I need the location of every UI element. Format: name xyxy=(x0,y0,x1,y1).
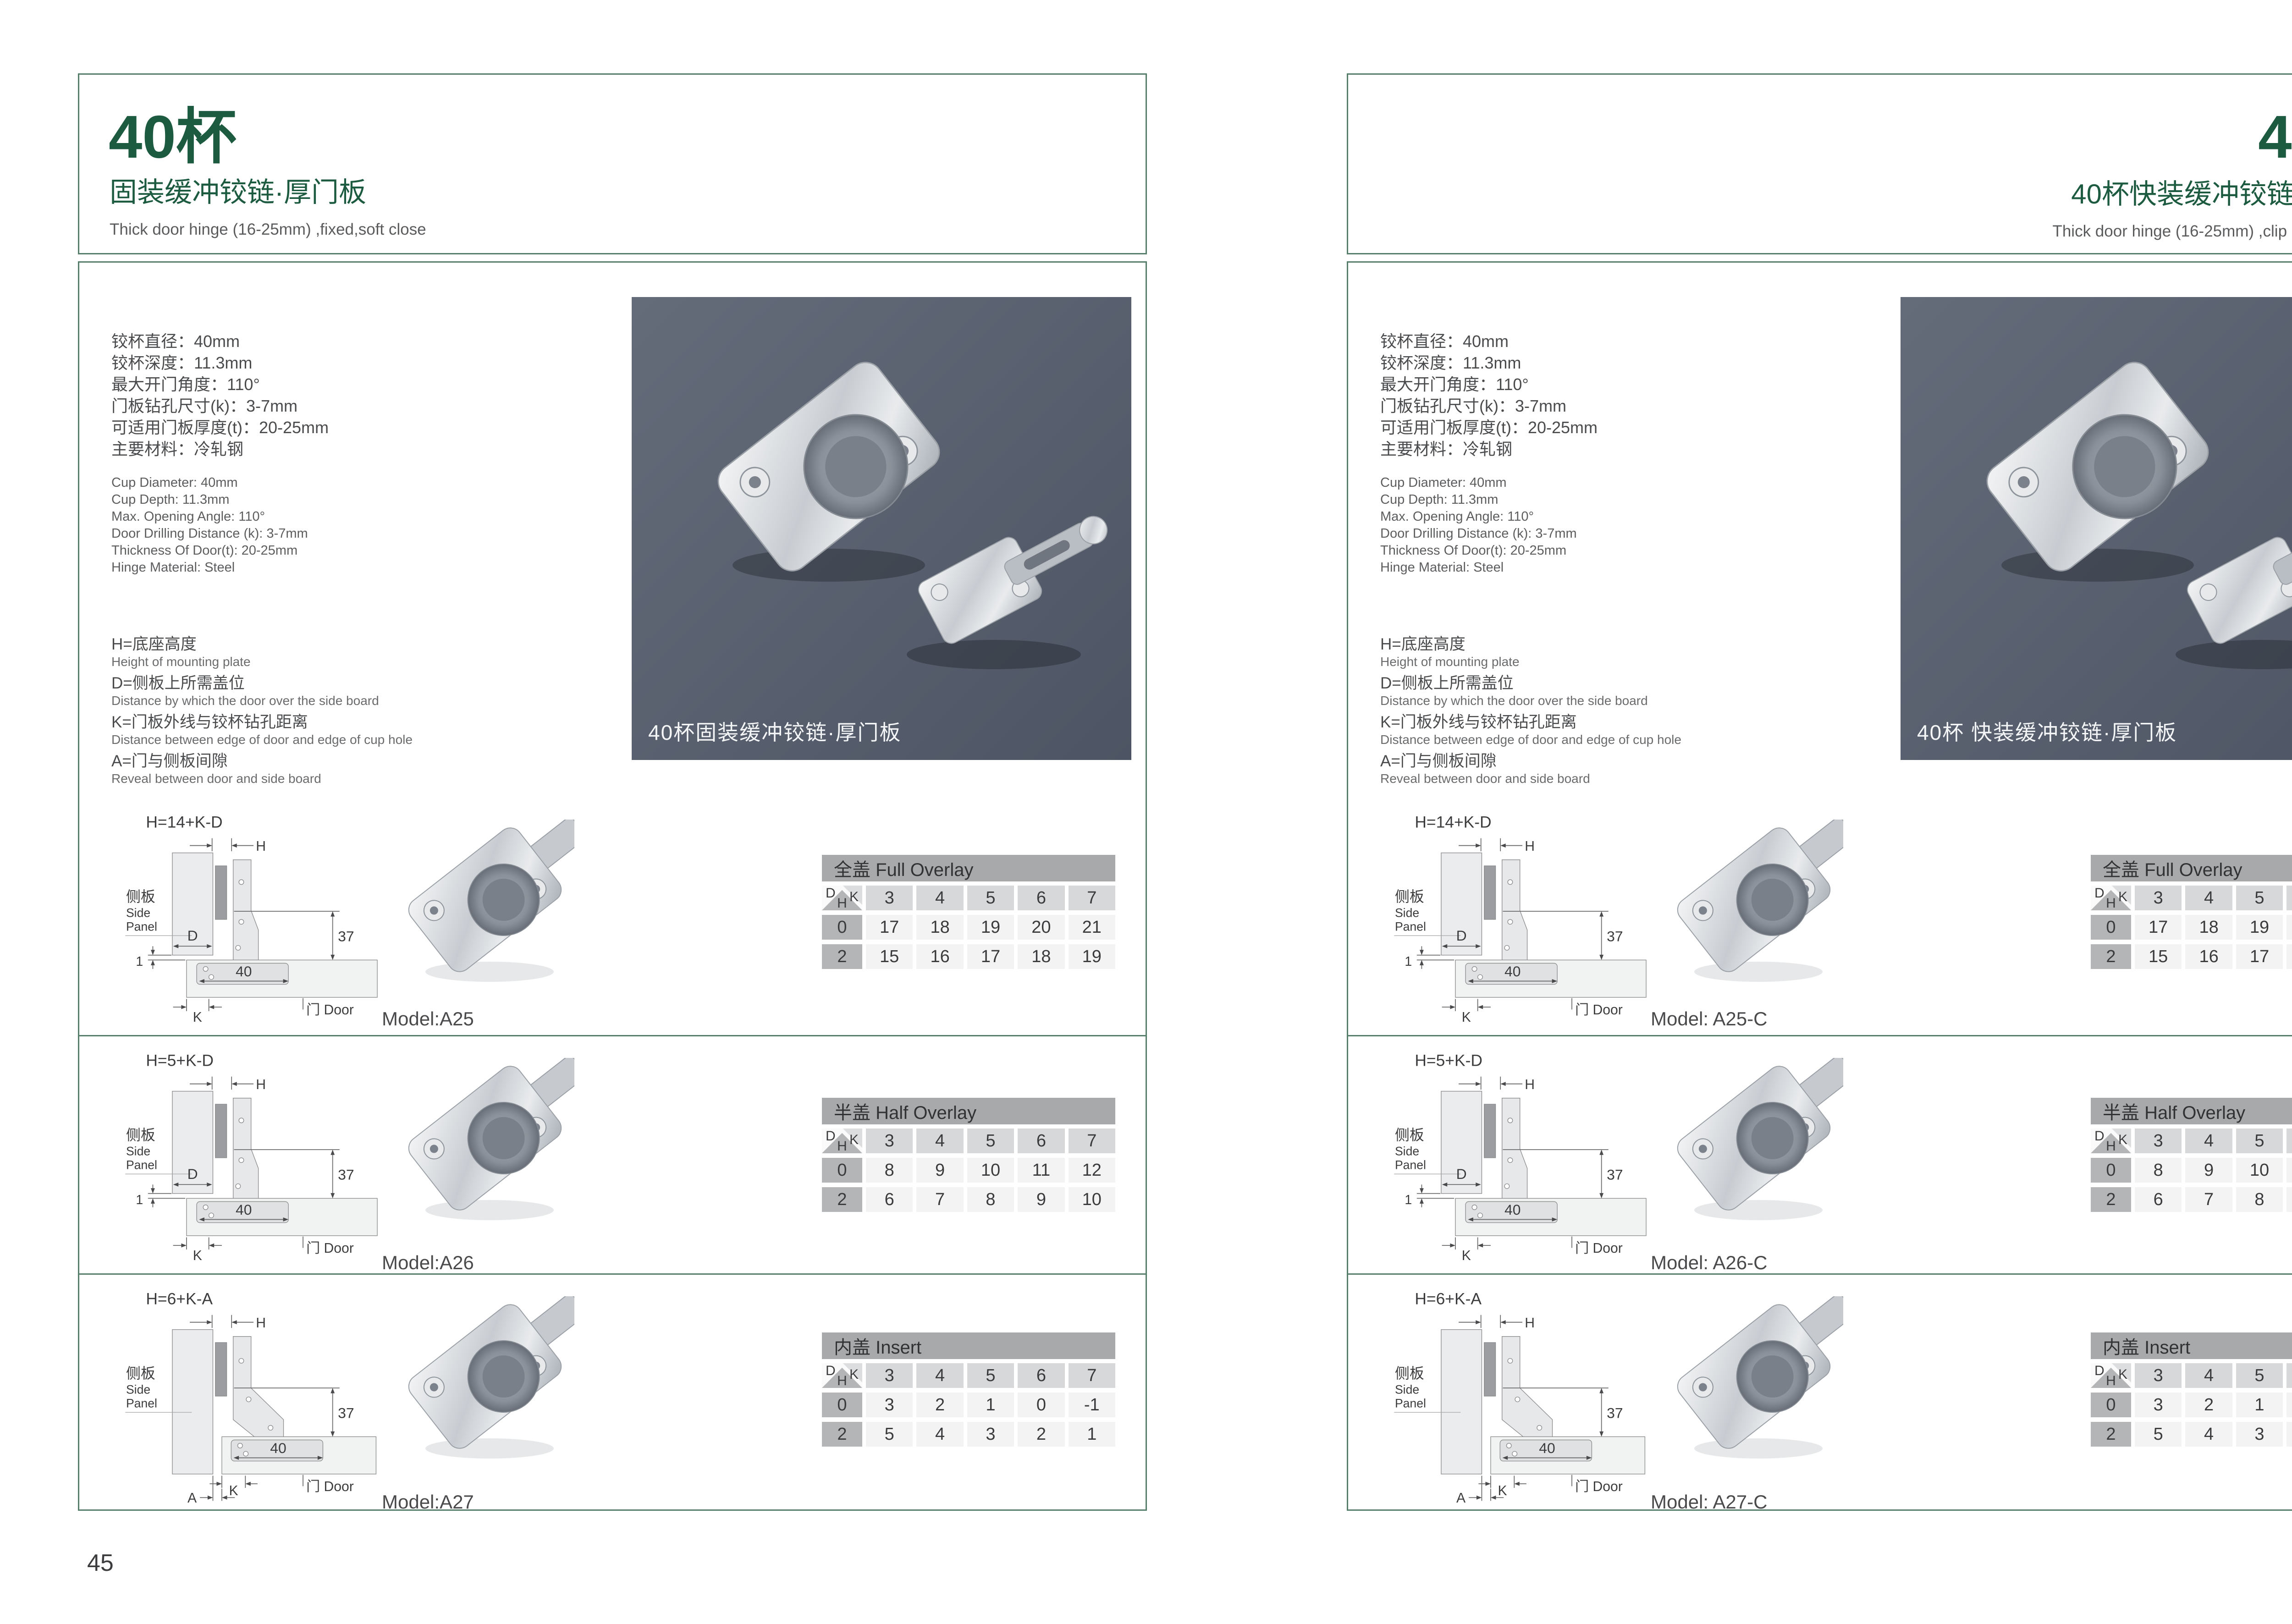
definition-cn: A=门与侧板间隙 xyxy=(111,752,629,771)
table-corner: D K H xyxy=(2091,1363,2131,1388)
table-value: 5 xyxy=(2135,1422,2182,1447)
definitions-block: H=底座高度 Height of mounting plate D=侧板上所需盖… xyxy=(111,635,629,791)
hinge-illustration xyxy=(400,820,574,994)
hinge-dimension-diagram: H=5+K-DH侧板SidePanel37D1K40门 Door xyxy=(111,1047,396,1271)
table-value: 21 xyxy=(1069,915,1115,940)
row-header: 2 xyxy=(822,944,862,969)
h-dim-label: H xyxy=(256,839,266,854)
corner-label-d: D xyxy=(2094,886,2105,901)
row-divider xyxy=(1348,1035,2292,1036)
side-panel-label-cn: 侧板 xyxy=(126,1365,155,1382)
row-divider xyxy=(79,1273,1146,1275)
row-header: 0 xyxy=(2091,1158,2131,1183)
definition-cn: A=门与侧板间隙 xyxy=(1380,752,1898,771)
corner-label-h: H xyxy=(2106,1373,2116,1388)
definition: D=侧板上所需盖位 Distance by which the door ove… xyxy=(111,674,629,709)
full-overlay-table: 全盖 Full Overlay D K H 3 4 5 6 7 0 17 18 xyxy=(822,855,1115,969)
spec-line-en: Max. Opening Angle: 110° xyxy=(111,508,620,525)
dim-37-label: 37 xyxy=(338,928,354,945)
row-header: 2 xyxy=(822,1187,862,1212)
hinge-photo xyxy=(1669,1296,1843,1470)
specs-cn-block: 铰杯直径：40mm 铰杯深度：11.3mm 最大开门角度：110° 门板钻孔尺寸… xyxy=(111,330,620,460)
table-corner: D K H xyxy=(822,1129,862,1153)
table-value: 6 xyxy=(2135,1187,2182,1212)
corner-label-k: K xyxy=(2118,889,2127,905)
door-label: 门 Door xyxy=(306,1002,354,1018)
row-header: 0 xyxy=(2091,915,2131,940)
table-corner: D K H xyxy=(822,886,862,910)
corner-label-d: D xyxy=(826,1363,836,1379)
installation-diagram: H=5+K-DH侧板SidePanel37D1K40门 Door xyxy=(1380,1047,1664,1271)
row-divider xyxy=(79,1035,1146,1036)
table-value: 8 xyxy=(967,1187,1014,1212)
corner-label-k: K xyxy=(849,1132,859,1148)
definition-cn: D=侧板上所需盖位 xyxy=(1380,674,1898,693)
table-grid: D K H 3 4 5 6 7 0 8 9 10 11 12 2 6 xyxy=(2091,1129,2292,1212)
table-value: 1 xyxy=(1069,1422,1115,1447)
col-header: 5 xyxy=(2236,1363,2283,1388)
dim-37-label: 37 xyxy=(338,1405,354,1421)
header-box: 40杯 40杯快装缓冲铰链·厚门板 Thick door hinge (16-2… xyxy=(1347,73,2292,254)
table-grid: D K H 3 4 5 6 7 0 8 9 10 11 12 2 6 xyxy=(822,1129,1115,1212)
hinge-photo xyxy=(400,1296,574,1470)
side-panel-label-cn: 侧板 xyxy=(126,1127,155,1143)
col-header: 4 xyxy=(2185,1129,2232,1153)
col-header: 6 xyxy=(2286,886,2292,910)
table-value: 10 xyxy=(1069,1187,1115,1212)
table-value: 19 xyxy=(967,915,1014,940)
col-header: 5 xyxy=(967,1363,1014,1388)
col-header: 4 xyxy=(2185,1363,2232,1388)
spec-line: 最大开门角度：110° xyxy=(1380,374,1889,395)
definition-en: Distance between edge of door and edge o… xyxy=(111,732,629,748)
col-header: 5 xyxy=(2236,886,2283,910)
k-dim-label: K xyxy=(193,1010,202,1025)
table-value: -1 xyxy=(1069,1393,1115,1417)
corner-label-d: D xyxy=(826,1129,836,1144)
definition-en: Distance by which the door over the side… xyxy=(111,693,629,709)
hinge-photo xyxy=(1669,1058,1843,1232)
spec-line: 门板钻孔尺寸(k)：3-7mm xyxy=(1380,395,1889,417)
dim-1-label: 1 xyxy=(136,954,143,969)
dim-40-label: 40 xyxy=(270,1440,286,1456)
header-box: 40杯 固装缓冲铰链·厚门板 Thick door hinge (16-25mm… xyxy=(78,73,1147,254)
side-panel-label-en: Panel xyxy=(1395,1158,1426,1172)
table-value: 15 xyxy=(2135,944,2182,969)
side-panel-label-en: Side xyxy=(1395,1383,1419,1397)
definitions-block: H=底座高度 Height of mounting plate D=侧板上所需盖… xyxy=(1380,635,1898,791)
col-header: 5 xyxy=(2236,1129,2283,1153)
definition-cn: D=侧板上所需盖位 xyxy=(111,674,629,693)
spec-line: 主要材料：冷轧钢 xyxy=(111,438,620,460)
h-dim-label: H xyxy=(1525,839,1535,854)
photo-caption: 40杯 快装缓冲铰链·厚门板 xyxy=(1917,716,2177,746)
col-header: 4 xyxy=(916,1129,963,1153)
table-grid: D K H 3 4 5 6 7 0 17 18 19 20 21 2 xyxy=(2091,886,2292,969)
col-header: 5 xyxy=(967,1129,1014,1153)
k-dim-label: K xyxy=(193,1248,202,1263)
row-header: 2 xyxy=(822,1422,862,1447)
table-value: 7 xyxy=(916,1187,963,1212)
definition: A=门与侧板间隙 Reveal between door and side bo… xyxy=(111,752,629,787)
h-dim-label: H xyxy=(256,1316,266,1331)
h-dim-label: H xyxy=(256,1077,266,1092)
diagram-formula: H=14+K-D xyxy=(146,813,222,831)
table-value: 11 xyxy=(2286,1158,2292,1183)
col-header: 4 xyxy=(2185,886,2232,910)
col-header: 7 xyxy=(1069,1363,1115,1388)
spec-line-en: Hinge Material: Steel xyxy=(111,559,620,576)
definition: D=侧板上所需盖位 Distance by which the door ove… xyxy=(1380,674,1898,709)
spec-line-en: Cup Depth: 11.3mm xyxy=(111,491,620,508)
k-dim-label: K xyxy=(1462,1248,1471,1263)
table-value: 4 xyxy=(2185,1422,2232,1447)
table-value: 0 xyxy=(1018,1393,1064,1417)
dim-40-label: 40 xyxy=(236,1201,252,1218)
content-box: 铰杯直径：40mm 铰杯深度：11.3mm 最大开门角度：110° 门板钻孔尺寸… xyxy=(1347,261,2292,1511)
row-header: 0 xyxy=(2091,1393,2131,1417)
hinge-photo xyxy=(400,1058,574,1232)
corner-label-k: K xyxy=(2118,1132,2127,1148)
definition-cn: K=门板外线与铰杯钻孔距离 xyxy=(111,713,629,732)
a-dim-label: A xyxy=(187,1491,197,1506)
side-panel-label-en: Side xyxy=(126,1383,150,1397)
col-header: 3 xyxy=(866,886,913,910)
model-label: Model:A27 xyxy=(382,1491,602,1513)
definition-en: Distance by which the door over the side… xyxy=(1380,693,1898,709)
model-label: Model: A25-C xyxy=(1651,1008,1871,1030)
col-header: 6 xyxy=(1018,886,1064,910)
row-header: 2 xyxy=(2091,1422,2131,1447)
col-header: 3 xyxy=(2135,1363,2182,1388)
table-value: 18 xyxy=(2185,915,2232,940)
row-header: 2 xyxy=(2091,944,2131,969)
corner-label-h: H xyxy=(837,896,847,910)
table-grid: D K H 3 4 5 6 7 0 3 2 1 0 -1 2 5 xyxy=(822,1363,1115,1447)
spec-line: 铰杯直径：40mm xyxy=(1380,330,1889,352)
definition: K=门板外线与铰杯钻孔距离 Distance between edge of d… xyxy=(1380,713,1898,748)
side-panel-label-en: Side xyxy=(1395,906,1419,920)
table-grid: D K H 3 4 5 6 7 0 3 2 1 0 -1 2 5 xyxy=(2091,1363,2292,1447)
col-header: 6 xyxy=(2286,1363,2292,1388)
page-subtitle: 40杯快装缓冲铰链·厚门板 xyxy=(1348,179,2292,209)
table-title: 内盖 Insert xyxy=(822,1332,1115,1359)
table-value: 9 xyxy=(1018,1187,1064,1212)
dim-1-label: 1 xyxy=(1405,1193,1412,1207)
hinge-illustration xyxy=(1669,820,1843,994)
door-label: 门 Door xyxy=(1575,1002,1623,1018)
table-value: 9 xyxy=(2286,1187,2292,1212)
full-overlay-table: 全盖 Full Overlay D K H 3 4 5 6 7 0 17 18 xyxy=(2091,855,2292,969)
spec-line-en: Cup Depth: 11.3mm xyxy=(1380,491,1889,508)
corner-label-d: D xyxy=(2094,1129,2105,1144)
table-value: 17 xyxy=(967,944,1014,969)
hinge-illustration xyxy=(1669,1296,1843,1470)
spec-line-en: Cup Diameter: 40mm xyxy=(1380,474,1889,491)
model-label: Model:A25 xyxy=(382,1008,602,1030)
side-panel-label-en: Panel xyxy=(126,1397,157,1410)
corner-label-k: K xyxy=(2118,1367,2127,1382)
dim-40-label: 40 xyxy=(1539,1440,1555,1456)
spec-line-en: Thickness Of Door(t): 20-25mm xyxy=(1380,542,1889,559)
page-right: 40杯 40杯快装缓冲铰链·厚门板 Thick door hinge (16-2… xyxy=(1347,73,2292,1531)
insert-table: 内盖 Insert D K H 3 4 5 6 7 0 3 2 xyxy=(822,1332,1115,1447)
hinge-illustration xyxy=(400,1058,574,1232)
spec-line-en: Door Drilling Distance (k): 3-7mm xyxy=(1380,525,1889,542)
specs-cn-block: 铰杯直径：40mm 铰杯深度：11.3mm 最大开门角度：110° 门板钻孔尺寸… xyxy=(1380,330,1889,460)
side-panel-label-cn: 侧板 xyxy=(126,888,155,905)
col-header: 5 xyxy=(967,886,1014,910)
table-title: 半盖 Half Overlay xyxy=(2091,1098,2292,1124)
d-dim-label: D xyxy=(1456,927,1467,944)
table-value: 8 xyxy=(866,1158,913,1183)
hinge-dimension-diagram: H=14+K-DH侧板SidePanel37D1K40门 Door xyxy=(1380,809,1664,1032)
table-corner: D K H xyxy=(822,1363,862,1388)
photo-caption: 40杯固装缓冲铰链·厚门板 xyxy=(648,716,901,746)
table-value: 2 xyxy=(916,1393,963,1417)
definition: A=门与侧板间隙 Reveal between door and side bo… xyxy=(1380,752,1898,787)
col-header: 4 xyxy=(916,886,963,910)
a-dim-label: A xyxy=(1456,1491,1466,1506)
table-value: 7 xyxy=(2185,1187,2232,1212)
k-dim-label: K xyxy=(229,1483,238,1498)
table-value: 19 xyxy=(2236,915,2283,940)
definition-en: Height of mounting plate xyxy=(1380,654,1898,670)
dim-40-label: 40 xyxy=(236,963,252,980)
row-header: 0 xyxy=(822,1158,862,1183)
table-value: 2 xyxy=(1018,1422,1064,1447)
spec-line: 门板钻孔尺寸(k)：3-7mm xyxy=(111,395,620,417)
table-value: 17 xyxy=(2135,915,2182,940)
table-value: 8 xyxy=(2236,1187,2283,1212)
side-panel-label-en: Panel xyxy=(1395,920,1426,934)
definition-en: Reveal between door and side board xyxy=(111,771,629,787)
dim-37-label: 37 xyxy=(1607,1167,1623,1183)
dim-40-label: 40 xyxy=(1504,1201,1521,1218)
table-value: 12 xyxy=(1069,1158,1115,1183)
half-overlay-table: 半盖 Half Overlay D K H 3 4 5 6 7 0 8 9 xyxy=(822,1098,1115,1212)
corner-label-k: K xyxy=(849,889,859,905)
table-value: 2 xyxy=(2286,1422,2292,1447)
spec-line-en: Hinge Material: Steel xyxy=(1380,559,1889,576)
installation-diagram: H=14+K-DH侧板SidePanel37D1K40门 Door xyxy=(111,809,396,1032)
definition-en: Distance between edge of door and edge o… xyxy=(1380,732,1898,748)
definition: H=底座高度 Height of mounting plate xyxy=(111,635,629,670)
table-value: 17 xyxy=(866,915,913,940)
spec-line: 铰杯深度：11.3mm xyxy=(1380,352,1889,374)
side-panel-label-en: Panel xyxy=(126,920,157,934)
corner-label-h: H xyxy=(2106,896,2116,910)
door-label: 门 Door xyxy=(1575,1479,1623,1494)
d-dim-label: D xyxy=(187,1166,198,1182)
insert-table: 内盖 Insert D K H 3 4 5 6 7 0 3 2 xyxy=(2091,1332,2292,1447)
table-title: 内盖 Insert xyxy=(2091,1332,2292,1359)
hinge-illustration xyxy=(1669,1058,1843,1232)
definition-en: Height of mounting plate xyxy=(111,654,629,670)
definition-en: Reveal between door and side board xyxy=(1380,771,1898,787)
table-corner: D K H xyxy=(2091,886,2131,910)
table-value: 16 xyxy=(2185,944,2232,969)
col-header: 7 xyxy=(1069,886,1115,910)
spec-line-en: Cup Diameter: 40mm xyxy=(111,474,620,491)
table-value: 1 xyxy=(967,1393,1014,1417)
product-photo: 40杯固装缓冲铰链·厚门板 xyxy=(632,297,1131,760)
table-value: 19 xyxy=(1069,944,1115,969)
dim-1-label: 1 xyxy=(136,1193,143,1207)
col-header: 4 xyxy=(916,1363,963,1388)
specs-en-block: Cup Diameter: 40mm Cup Depth: 11.3mm Max… xyxy=(1380,474,1889,576)
side-panel-label-en: Panel xyxy=(1395,1397,1426,1410)
hinge-photo xyxy=(400,820,574,994)
table-value: 6 xyxy=(866,1187,913,1212)
col-header: 7 xyxy=(1069,1129,1115,1153)
corner-label-h: H xyxy=(837,1139,847,1153)
table-value: 9 xyxy=(2185,1158,2232,1183)
table-value: 2 xyxy=(2185,1393,2232,1417)
side-panel-label-en: Side xyxy=(126,1145,150,1158)
definition: K=门板外线与铰杯钻孔距离 Distance between edge of d… xyxy=(111,713,629,748)
table-value: 20 xyxy=(1018,915,1064,940)
table-grid: D K H 3 4 5 6 7 0 17 18 19 20 21 2 xyxy=(822,886,1115,969)
table-value: 3 xyxy=(866,1393,913,1417)
installation-diagram: H=6+K-AH侧板SidePanel37KA40门 Door xyxy=(1380,1286,1664,1509)
hero-hinge-illustration xyxy=(632,297,1131,760)
door-label: 门 Door xyxy=(306,1479,354,1494)
catalog-spread: 40杯 固装缓冲铰链·厚门板 Thick door hinge (16-25mm… xyxy=(0,0,2292,1624)
table-title: 半盖 Half Overlay xyxy=(822,1098,1115,1124)
side-panel-label-en: Panel xyxy=(126,1158,157,1172)
product-photo: 40杯 快装缓冲铰链·厚门板 xyxy=(1901,297,2292,760)
dim-37-label: 37 xyxy=(1607,928,1623,945)
table-value: 5 xyxy=(866,1422,913,1447)
col-header: 3 xyxy=(2135,886,2182,910)
diagram-formula: H=14+K-D xyxy=(1415,813,1491,831)
table-value: 3 xyxy=(2236,1422,2283,1447)
col-header: 6 xyxy=(1018,1363,1064,1388)
table-value: 18 xyxy=(1018,944,1064,969)
table-value: 3 xyxy=(967,1422,1014,1447)
table-value: 1 xyxy=(2236,1393,2283,1417)
hinge-dimension-diagram: H=6+K-AH侧板SidePanel37KA40门 Door xyxy=(111,1286,396,1509)
side-panel-label-en: Side xyxy=(1395,1145,1419,1158)
dim-37-label: 37 xyxy=(1607,1405,1623,1421)
page-title: 40杯 xyxy=(109,107,1146,167)
page-left: 40杯 固装缓冲铰链·厚门板 Thick door hinge (16-25mm… xyxy=(78,73,1147,1531)
installation-diagram: H=6+K-AH侧板SidePanel37KA40门 Door xyxy=(111,1286,396,1509)
d-dim-label: D xyxy=(187,927,198,944)
page-subtitle: 固装缓冲铰链·厚门板 xyxy=(110,177,1146,208)
table-value: 10 xyxy=(967,1158,1014,1183)
h-dim-label: H xyxy=(1525,1077,1535,1092)
page-subtitle-en: Thick door hinge (16-25mm) ,fixed,soft c… xyxy=(110,220,1146,239)
table-value: 4 xyxy=(916,1422,963,1447)
table-value: 11 xyxy=(1018,1158,1064,1183)
spec-line: 可适用门板厚度(t)：20-25mm xyxy=(111,417,620,438)
diagram-formula: H=6+K-A xyxy=(146,1290,213,1308)
definition-cn: K=门板外线与铰杯钻孔距离 xyxy=(1380,713,1898,732)
table-value: 15 xyxy=(866,944,913,969)
page-subtitle-en: Thick door hinge (16-25mm) ,clip on ,sof… xyxy=(1348,222,2292,241)
corner-label-d: D xyxy=(826,886,836,901)
row-header: 0 xyxy=(822,1393,862,1417)
h-dim-label: H xyxy=(1525,1316,1535,1331)
spec-line: 最大开门角度：110° xyxy=(111,374,620,395)
door-label: 门 Door xyxy=(306,1241,354,1256)
corner-label-h: H xyxy=(837,1373,847,1388)
table-value: 3 xyxy=(2135,1393,2182,1417)
spec-line-en: Max. Opening Angle: 110° xyxy=(1380,508,1889,525)
dim-40-label: 40 xyxy=(1504,963,1521,980)
col-header: 3 xyxy=(866,1363,913,1388)
col-header: 6 xyxy=(2286,1129,2292,1153)
diagram-formula: H=5+K-D xyxy=(146,1051,214,1070)
col-header: 6 xyxy=(1018,1129,1064,1153)
table-value: 8 xyxy=(2135,1158,2182,1183)
definition-cn: H=底座高度 xyxy=(1380,635,1898,654)
hinge-dimension-diagram: H=6+K-AH侧板SidePanel37KA40门 Door xyxy=(1380,1286,1664,1509)
d-dim-label: D xyxy=(1456,1166,1467,1182)
model-label: Model:A26 xyxy=(382,1252,602,1274)
row-header: 0 xyxy=(822,915,862,940)
specs-en-block: Cup Diameter: 40mm Cup Depth: 11.3mm Max… xyxy=(111,474,620,576)
spec-line: 铰杯深度：11.3mm xyxy=(111,352,620,374)
table-corner: D K H xyxy=(2091,1129,2131,1153)
hinge-photo xyxy=(1669,820,1843,994)
hero-hinge-illustration xyxy=(1901,297,2292,760)
diagram-formula: H=6+K-A xyxy=(1415,1290,1482,1308)
side-panel-label-cn: 侧板 xyxy=(1395,1365,1424,1382)
table-value: 0 xyxy=(2286,1393,2292,1417)
col-header: 3 xyxy=(866,1129,913,1153)
table-title: 全盖 Full Overlay xyxy=(822,855,1115,881)
col-header: 3 xyxy=(2135,1129,2182,1153)
page-number-left: 45 xyxy=(87,1549,114,1577)
spec-line-en: Door Drilling Distance (k): 3-7mm xyxy=(111,525,620,542)
definition: H=底座高度 Height of mounting plate xyxy=(1380,635,1898,670)
corner-label-d: D xyxy=(2094,1363,2105,1379)
installation-diagram: H=14+K-DH侧板SidePanel37D1K40门 Door xyxy=(1380,809,1664,1032)
corner-label-h: H xyxy=(2106,1139,2116,1153)
spec-line: 主要材料：冷轧钢 xyxy=(1380,438,1889,460)
content-box: 铰杯直径：40mm 铰杯深度：11.3mm 最大开门角度：110° 门板钻孔尺寸… xyxy=(78,261,1147,1511)
table-value: 18 xyxy=(2286,944,2292,969)
definition-cn: H=底座高度 xyxy=(111,635,629,654)
k-dim-label: K xyxy=(1498,1483,1507,1498)
dim-1-label: 1 xyxy=(1405,954,1412,969)
side-panel-label-cn: 侧板 xyxy=(1395,888,1424,905)
half-overlay-table: 半盖 Half Overlay D K H 3 4 5 6 7 0 8 9 xyxy=(2091,1098,2292,1212)
diagram-formula: H=5+K-D xyxy=(1415,1051,1482,1070)
table-value: 9 xyxy=(916,1158,963,1183)
corner-label-k: K xyxy=(849,1367,859,1382)
table-value: 10 xyxy=(2236,1158,2283,1183)
spec-line: 可适用门板厚度(t)：20-25mm xyxy=(1380,417,1889,438)
model-label: Model: A27-C xyxy=(1651,1491,1871,1513)
spec-line: 铰杯直径：40mm xyxy=(111,330,620,352)
page-title: 40杯 xyxy=(1348,107,2292,167)
installation-diagram: H=5+K-DH侧板SidePanel37D1K40门 Door xyxy=(111,1047,396,1271)
table-value: 20 xyxy=(2286,915,2292,940)
side-panel-label-cn: 侧板 xyxy=(1395,1127,1424,1143)
table-value: 17 xyxy=(2236,944,2283,969)
hinge-illustration xyxy=(400,1296,574,1470)
k-dim-label: K xyxy=(1462,1010,1471,1025)
table-value: 16 xyxy=(916,944,963,969)
row-header: 2 xyxy=(2091,1187,2131,1212)
side-panel-label-en: Side xyxy=(126,906,150,920)
hinge-dimension-diagram: H=5+K-DH侧板SidePanel37D1K40门 Door xyxy=(1380,1047,1664,1271)
table-title: 全盖 Full Overlay xyxy=(2091,855,2292,881)
